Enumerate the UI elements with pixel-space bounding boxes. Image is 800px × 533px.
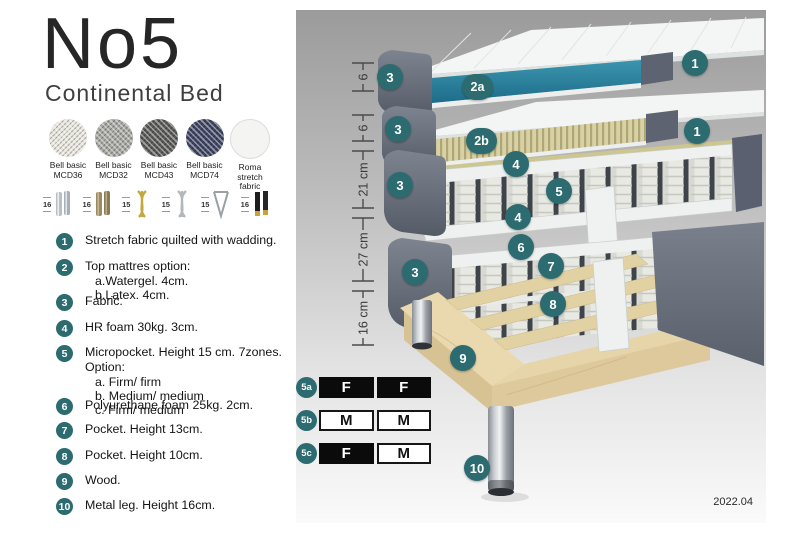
firmness-cell: F <box>319 377 374 398</box>
fabric-code: MCD43 <box>145 170 174 180</box>
callout-3: 3 <box>377 64 403 90</box>
fabric-swatch-icon <box>49 119 87 157</box>
legend-number: 8 <box>56 448 73 465</box>
callout-9: 9 <box>450 345 476 371</box>
firmness-cell: M <box>319 410 374 431</box>
legend-number: 6 <box>56 398 73 415</box>
callout-8: 8 <box>540 291 566 317</box>
callout-2b: 2b <box>466 128 497 154</box>
callout-3: 3 <box>385 116 411 142</box>
fabric-name: Bell basic <box>50 160 86 170</box>
firmness-badge: 5c <box>296 443 317 464</box>
legend-text: Polyurethane foam 25kg. 2cm. <box>85 398 253 415</box>
fabric-name: Roma <box>239 162 262 172</box>
legend-number: 10 <box>56 498 73 515</box>
legend-text: Metal leg. Height 16cm. <box>85 498 215 515</box>
leg-option: 15 <box>162 189 192 219</box>
firmness-badge: 5a <box>296 377 317 398</box>
leg-height: 15 <box>201 197 209 212</box>
silver-twisted-legs-icon <box>172 189 192 219</box>
leg-height: 16 <box>43 197 51 212</box>
fabric-name: Bell basic <box>141 160 177 170</box>
legend-text: Fabric. <box>85 294 123 311</box>
fabric-swatch-icon <box>186 119 224 157</box>
legend-number: 4 <box>56 320 73 337</box>
leg-option: 16 <box>83 189 113 219</box>
firmness-cell: M <box>377 443 432 464</box>
leg-option: 15 <box>122 189 152 219</box>
metal-leg-front <box>481 406 529 502</box>
metal-leg-back <box>412 300 432 350</box>
fabric-swatch-icon <box>230 119 270 159</box>
callout-5: 5 <box>546 178 572 204</box>
legend-number: 9 <box>56 473 73 490</box>
legend-item: 8 Pocket. Height 10cm. <box>56 448 203 465</box>
fabric-code: MCD36 <box>54 170 83 180</box>
legend-text: Micropocket. Height 15 cm. 7zones. Optio… <box>85 345 282 374</box>
fabric-swatch: Bell basicMCD74 <box>184 119 226 192</box>
leg-option: 16 <box>43 189 73 219</box>
legend-number: 7 <box>56 422 73 439</box>
legend-item: 3 Fabric. <box>56 294 123 311</box>
firmness-row-5b: 5b M M <box>296 410 431 431</box>
callout-4: 4 <box>505 204 531 230</box>
black-gold-legs-icon <box>251 189 271 219</box>
legend-text: Pocket. Height 13cm. <box>85 422 203 439</box>
legend-number: 3 <box>56 294 73 311</box>
callout-3: 3 <box>402 259 428 285</box>
fabric-name: Bell basic <box>186 160 222 170</box>
hairpin-legs-icon <box>211 189 231 219</box>
legend-number: 2 <box>56 259 73 276</box>
leg-option: 16 <box>241 189 271 219</box>
legend-item: 10 Metal leg. Height 16cm. <box>56 498 215 515</box>
callout-1: 1 <box>684 118 710 144</box>
callout-7: 7 <box>538 253 564 279</box>
page-subtitle: Continental Bed <box>45 80 224 107</box>
left-column: No5 Continental Bed Bell basicMCD36 Bell… <box>0 0 296 533</box>
legend-item: 1 Stretch fabric quilted with wadding. <box>56 233 276 250</box>
leg-height: 16 <box>83 197 91 212</box>
leg-height: 15 <box>122 197 130 212</box>
legend-number: 1 <box>56 233 73 250</box>
bronze-cylinder-legs-icon <box>93 189 113 219</box>
fabric-code: MCD74 <box>190 170 219 180</box>
product-sheet: No5 Continental Bed Bell basicMCD36 Bell… <box>0 0 800 533</box>
legend-item: 9 Wood. <box>56 473 121 490</box>
callout-4: 4 <box>503 151 529 177</box>
firmness-row-5a: 5a F F <box>296 377 431 398</box>
callout-10: 10 <box>464 455 490 481</box>
legend-text: HR foam 30kg. 3cm. <box>85 320 198 337</box>
callout-1: 1 <box>682 50 708 76</box>
legend-item: 4 HR foam 30kg. 3cm. <box>56 320 198 337</box>
box-corner-post <box>593 258 629 352</box>
legend-number: 5 <box>56 345 73 362</box>
fabric-swatch-icon <box>140 119 178 157</box>
firmness-badge: 5b <box>296 410 317 431</box>
firmness-row-5c: 5c F M <box>296 443 431 464</box>
dimension-label: 6 <box>357 73 371 80</box>
fabric-swatch: Bell basicMCD36 <box>47 119 89 192</box>
legend-text: Top mattres option: <box>85 259 190 273</box>
callout-3: 3 <box>387 172 413 198</box>
fabric-swatch: Bell basicMCD32 <box>93 119 135 192</box>
leg-height: 16 <box>241 197 249 212</box>
callout-2a: 2a <box>462 74 493 100</box>
dimension-label: 6 <box>357 124 371 131</box>
legend-subitem: a. Firm/ firm <box>95 375 294 389</box>
fabric-name: Bell basic <box>95 160 131 170</box>
legend-subitem: a.Watergel. 4cm. <box>95 274 190 288</box>
legend-text: Wood. <box>85 473 121 490</box>
leg-option: 15 <box>201 189 231 219</box>
firmness-cell: M <box>377 410 432 431</box>
fabric-swatches: Bell basicMCD36 Bell basicMCD32 Bell bas… <box>47 119 271 192</box>
diagram-panel: 6 6 21 cm 27 cm 16 cm <box>296 10 766 523</box>
gold-twisted-legs-icon <box>132 189 152 219</box>
fabric-swatch-icon <box>95 119 133 157</box>
leg-height: 15 <box>162 197 170 212</box>
page-title: No5 <box>42 8 183 80</box>
callout-6: 6 <box>508 234 534 260</box>
legend-item: 7 Pocket. Height 13cm. <box>56 422 203 439</box>
revision-date: 2022.04 <box>713 496 753 508</box>
legend-text: Pocket. Height 10cm. <box>85 448 203 465</box>
legend-item: 6 Polyurethane foam 25kg. 2cm. <box>56 398 253 415</box>
fabric-swatch: Romastretch fabric <box>229 119 271 192</box>
chrome-cylinder-legs-icon <box>53 189 73 219</box>
dimension-label: 21 cm <box>357 162 371 196</box>
firmness-cell: F <box>377 377 432 398</box>
fabric-code: MCD32 <box>99 170 128 180</box>
fabric-swatch: Bell basicMCD43 <box>138 119 180 192</box>
dimension-label: 27 cm <box>357 232 371 266</box>
dimension-label: 16 cm <box>357 301 371 335</box>
legend-text: Stretch fabric quilted with wadding. <box>85 233 276 250</box>
leg-options: 16 16 15 15 15 16 <box>43 189 271 219</box>
firmness-cell: F <box>319 443 374 464</box>
